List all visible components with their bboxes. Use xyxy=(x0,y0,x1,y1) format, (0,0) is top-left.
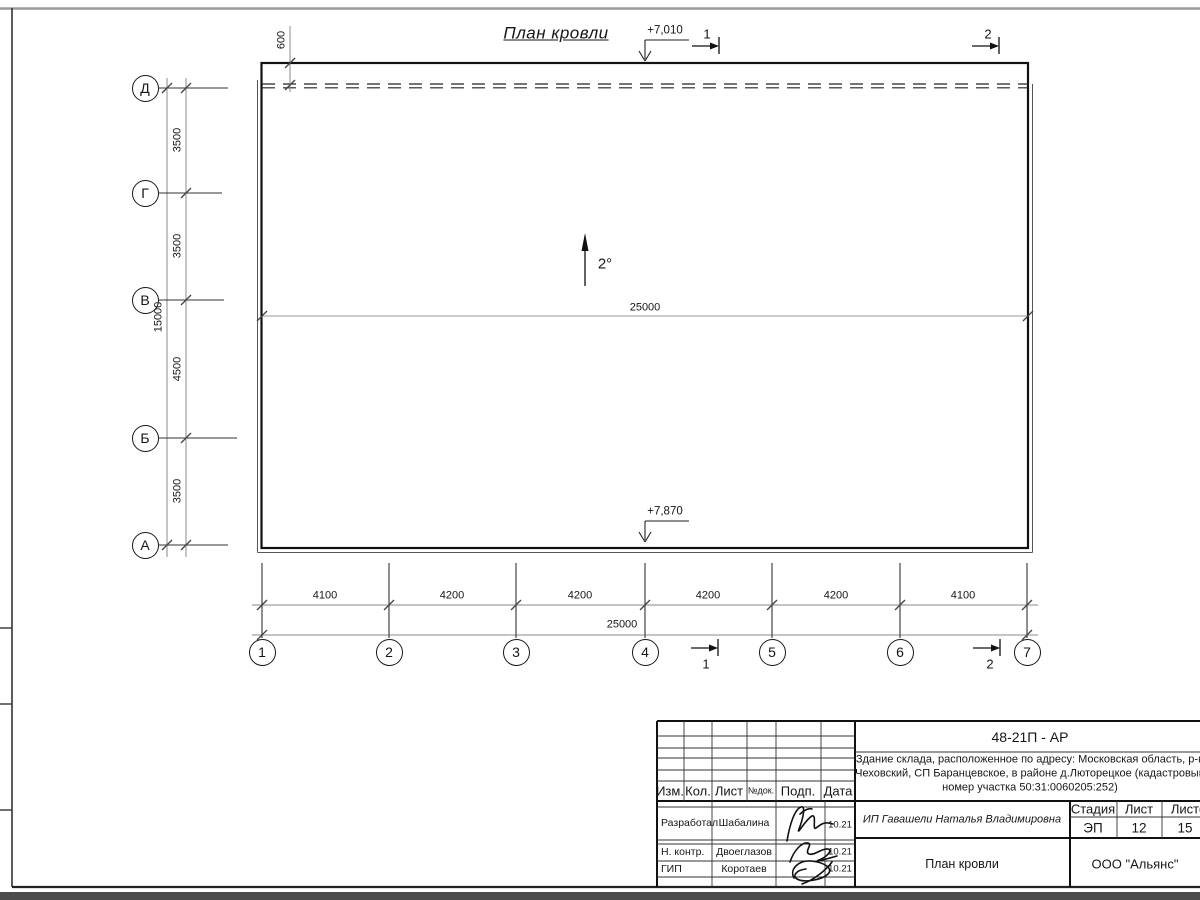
titleblock-sheets-label: Листов xyxy=(1171,803,1200,816)
dimension-lines xyxy=(167,26,1038,635)
signoff-name: Коротаев xyxy=(721,864,766,875)
axis-bubble-a: А xyxy=(132,532,159,559)
section-1-bottom-label: 1 xyxy=(702,658,709,671)
titleblock-sheets-value: 15 xyxy=(1177,821,1192,835)
axis-bubble-6: 6 xyxy=(887,639,914,666)
slope-arrow xyxy=(582,233,589,286)
dim-row-span: 4500 xyxy=(173,357,184,381)
titleblock-project-line: номер участка 50:31:0060205:252) xyxy=(942,783,1118,794)
signoff-date: 10.21 xyxy=(828,847,852,857)
titleblock-project-line: Чеховский, СП Баранцевское, в районе д.Л… xyxy=(855,769,1200,780)
elevation-mark-top xyxy=(639,40,689,61)
dim-col-span: 4200 xyxy=(824,591,848,602)
dim-col-span: 4200 xyxy=(696,591,720,602)
axis-bubble-2: 2 xyxy=(376,639,403,666)
titleblock-doc-number: 48-21П - АР xyxy=(992,730,1069,744)
section-mark-2-bottom xyxy=(973,639,1000,656)
axis-bubble-5: 5 xyxy=(759,639,786,666)
axis-label: 7 xyxy=(1023,644,1031,660)
titleblock-col-data: Дата xyxy=(824,785,853,798)
axis-label: Б xyxy=(140,430,149,446)
dim-col-span: 4100 xyxy=(951,591,975,602)
axis-bubble-g: Г xyxy=(132,180,159,207)
axis-label: 6 xyxy=(896,644,904,660)
drawing-sheet: План кровли 600 +7,010 +7,870 2° 25000 1… xyxy=(0,0,1200,900)
signoff-date: 10.21 xyxy=(828,820,852,830)
elevation-top-label: +7,010 xyxy=(647,25,683,37)
signoff-role: Н. контр. xyxy=(661,847,704,858)
signoff-date: 10.21 xyxy=(828,864,852,874)
axis-label: А xyxy=(140,537,149,553)
axis-bubble-7: 7 xyxy=(1014,639,1041,666)
titleblock-company: ООО "Альянс" xyxy=(1092,858,1179,871)
dim-rows-total: 15000 xyxy=(154,302,165,333)
section-2-bottom-label: 2 xyxy=(986,658,993,671)
titleblock-drawing-name: План кровли xyxy=(925,858,999,871)
axis-lines xyxy=(159,88,1027,638)
dim-cols-total: 25000 xyxy=(607,620,638,631)
axis-label: Г xyxy=(141,185,149,201)
titleblock-col-podp: Подп. xyxy=(781,785,816,798)
titleblock-col-list: Лист xyxy=(715,785,743,798)
section-mark-1-bottom xyxy=(691,639,718,656)
axis-label: 4 xyxy=(641,644,649,660)
titleblock-col-ndok: №док. xyxy=(748,787,774,796)
titleblock-stage-value: ЭП xyxy=(1083,821,1102,835)
dim-roof-overhang: 600 xyxy=(277,31,288,49)
section-2-top-label: 2 xyxy=(984,28,991,41)
titleblock-col-izm: Изм. xyxy=(656,785,684,798)
titleblock-project-line: Здание склада, расположенное по адресу: … xyxy=(856,755,1200,766)
drawing-title: План кровли xyxy=(503,25,608,42)
axis-label: В xyxy=(140,292,149,308)
dim-col-span: 4100 xyxy=(313,591,337,602)
signoff-name: Шабалина xyxy=(719,818,770,829)
signature-shabalina xyxy=(787,807,833,841)
axis-bubble-1: 1 xyxy=(249,639,276,666)
axis-label: 2 xyxy=(385,644,393,660)
signoff-role: ГИП xyxy=(661,864,682,875)
axis-bubble-4: 4 xyxy=(632,639,659,666)
axis-label: 5 xyxy=(768,644,776,660)
section-1-top-label: 1 xyxy=(703,28,710,41)
dim-row-span: 3500 xyxy=(173,234,184,258)
dim-row-span: 3500 xyxy=(173,128,184,152)
dim-ridge-length: 25000 xyxy=(630,303,661,314)
axis-bubble-3: 3 xyxy=(503,639,530,666)
titleblock-sheet-label: Лист xyxy=(1125,803,1153,816)
titleblock-col-kol: Кол. xyxy=(685,785,711,798)
elevation-bottom-label: +7,870 xyxy=(647,506,683,518)
titleblock-sheet-value: 12 xyxy=(1131,821,1146,835)
elevation-mark-bottom xyxy=(639,521,689,542)
axis-bubble-b: Б xyxy=(132,425,159,452)
signoff-role: Разработал xyxy=(661,818,718,829)
titleblock-client: ИП Гавашели Наталья Владимировна xyxy=(863,815,1061,826)
axis-label: 1 xyxy=(258,644,266,660)
signoff-name: Двоеглазов xyxy=(716,847,772,858)
dim-col-span: 4200 xyxy=(440,591,464,602)
axis-label: 3 xyxy=(512,644,520,660)
axis-bubble-d: Д xyxy=(132,75,159,102)
dim-row-span: 3500 xyxy=(173,479,184,503)
dim-col-span: 4200 xyxy=(568,591,592,602)
titleblock-stage-label: Стадия xyxy=(1071,803,1115,816)
slope-label: 2° xyxy=(598,257,612,272)
axis-label: Д xyxy=(140,80,149,96)
